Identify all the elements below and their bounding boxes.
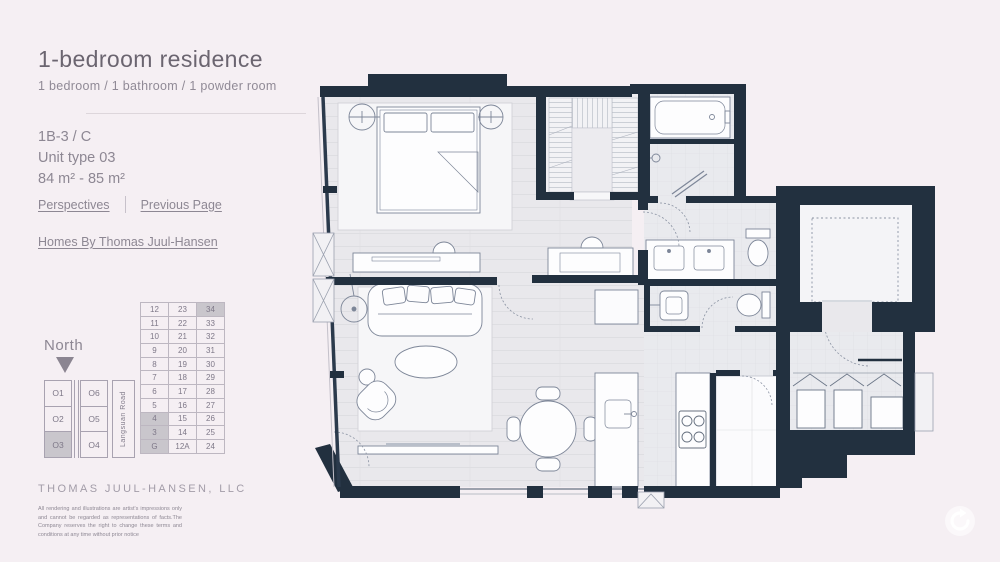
- tv-shelf: [358, 446, 498, 454]
- tv: [386, 443, 460, 446]
- dresser: [353, 253, 480, 272]
- floor-cell[interactable]: 25: [197, 426, 225, 440]
- headboard-wall: [368, 74, 507, 97]
- unit-cell[interactable]: O5: [80, 406, 108, 433]
- unit-map-divider: [74, 380, 79, 458]
- floor-cell[interactable]: 23: [169, 303, 197, 317]
- floor-cell[interactable]: 22: [169, 316, 197, 330]
- floor-cell[interactable]: 14: [169, 426, 197, 440]
- floor-cell[interactable]: 31: [197, 344, 225, 358]
- dining-chair: [507, 417, 520, 441]
- unit-cell[interactable]: O3: [44, 431, 72, 458]
- pillow: [384, 113, 427, 132]
- floor-cell[interactable]: 18: [169, 371, 197, 385]
- floor-cell[interactable]: 12: [141, 303, 169, 317]
- floor-cell[interactable]: 33: [197, 316, 225, 330]
- homes-by-link[interactable]: Homes By Thomas Juul-Hansen: [38, 235, 218, 249]
- floor-cell[interactable]: 21: [169, 330, 197, 344]
- rotate-button[interactable]: [941, 502, 979, 540]
- floor-cell[interactable]: 19: [169, 357, 197, 371]
- walk-in-closet: [549, 98, 638, 200]
- unit-map-left-col: O1O2O3: [44, 380, 72, 458]
- perspectives-link[interactable]: Perspectives: [38, 198, 110, 212]
- unit-area: 84 m² - 85 m²: [38, 169, 125, 190]
- cabinet: [595, 290, 638, 324]
- floor-cell[interactable]: G: [141, 439, 169, 453]
- floor-cell[interactable]: 8: [141, 357, 169, 371]
- kitchen-island: [595, 373, 638, 487]
- page-title: 1-bedroom residence: [38, 46, 263, 73]
- floor-cell[interactable]: 9: [141, 344, 169, 358]
- floor-cell[interactable]: 26: [197, 412, 225, 426]
- floor-cell[interactable]: 4: [141, 412, 169, 426]
- unit-cell[interactable]: O4: [80, 431, 108, 458]
- north-arrow-icon: [56, 357, 74, 373]
- bathtub: [650, 97, 730, 138]
- page-subtitle: 1 bedroom / 1 bathroom / 1 powder room: [38, 79, 277, 93]
- dining-table: [520, 401, 576, 457]
- floor-cell[interactable]: 16: [169, 398, 197, 412]
- unit-code: 1B-3 / C: [38, 127, 125, 148]
- disclaimer-text: All rendering and illustrations are arti…: [38, 505, 182, 539]
- rotate-icon: [941, 502, 979, 540]
- side-ledge: [915, 373, 933, 431]
- closet-box: [797, 390, 825, 428]
- floor-cell[interactable]: 3: [141, 426, 169, 440]
- unit-cell[interactable]: O1: [44, 380, 72, 407]
- floor-cell[interactable]: 7: [141, 371, 169, 385]
- floor-cell[interactable]: 5: [141, 398, 169, 412]
- unit-info: 1B-3 / C Unit type 03 84 m² - 85 m²: [38, 127, 125, 190]
- previous-page-link[interactable]: Previous Page: [141, 198, 222, 212]
- floor-cell[interactable]: 11: [141, 316, 169, 330]
- floor-cell[interactable]: 30: [197, 357, 225, 371]
- floor-cell[interactable]: 10: [141, 330, 169, 344]
- floor-cell[interactable]: 24: [197, 439, 225, 453]
- link-separator: [125, 196, 126, 213]
- wardrobe-shelves: [612, 98, 638, 192]
- wardrobe-shelves: [549, 98, 572, 192]
- lift-interior: [800, 205, 912, 302]
- nav-links: Perspectives Previous Page: [38, 196, 222, 213]
- unit-type: Unit type 03: [38, 148, 125, 169]
- sofa-pillow: [430, 286, 453, 304]
- sofa-pillow: [406, 285, 429, 303]
- floor-cell[interactable]: 17: [169, 385, 197, 399]
- road-label: Langsuan Road: [112, 380, 135, 458]
- floor-cell[interactable]: 32: [197, 330, 225, 344]
- floor-cell[interactable]: 29: [197, 371, 225, 385]
- dining-chair: [536, 387, 560, 400]
- sofa-pillow: [454, 288, 476, 306]
- floor-plan-drawing: [310, 70, 942, 518]
- sofa-pillow: [382, 287, 406, 306]
- toilet: [762, 292, 770, 318]
- floor-plan: [310, 70, 942, 518]
- unit-map-right-col: O6O5O4: [80, 380, 108, 458]
- closet-box: [834, 390, 862, 428]
- unit-cell[interactable]: O6: [80, 380, 108, 407]
- floor-cell[interactable]: 15: [169, 412, 197, 426]
- brand-footer: THOMAS JUUL-HANSEN, LLC: [38, 483, 247, 495]
- floor-cell[interactable]: 20: [169, 344, 197, 358]
- floor-cell[interactable]: 34: [197, 303, 225, 317]
- coffee-table: [395, 346, 457, 378]
- floor-stack-table: 1223341122331021329203181930718296172851…: [140, 302, 225, 454]
- floor-cell[interactable]: 27: [197, 398, 225, 412]
- closet-box: [871, 397, 903, 428]
- toilet: [746, 229, 770, 238]
- pillow: [431, 113, 474, 132]
- powder-sink: [660, 291, 688, 320]
- unit-cell[interactable]: O2: [44, 406, 72, 433]
- divider-line: [86, 113, 306, 114]
- kitchen-fixtures: [676, 373, 788, 487]
- dining-chair: [536, 458, 560, 471]
- north-label: North: [44, 337, 83, 354]
- wardrobe-shelves: [572, 98, 612, 128]
- closet-threshold: [570, 192, 614, 200]
- floor-cell[interactable]: 12A: [169, 439, 197, 453]
- floor-cell[interactable]: 28: [197, 385, 225, 399]
- homes-link-row: Homes By Thomas Juul-Hansen: [38, 235, 218, 249]
- unit-map: O1O2O3 O6O5O4 Langsuan Road: [44, 380, 135, 458]
- floor-cell[interactable]: 6: [141, 385, 169, 399]
